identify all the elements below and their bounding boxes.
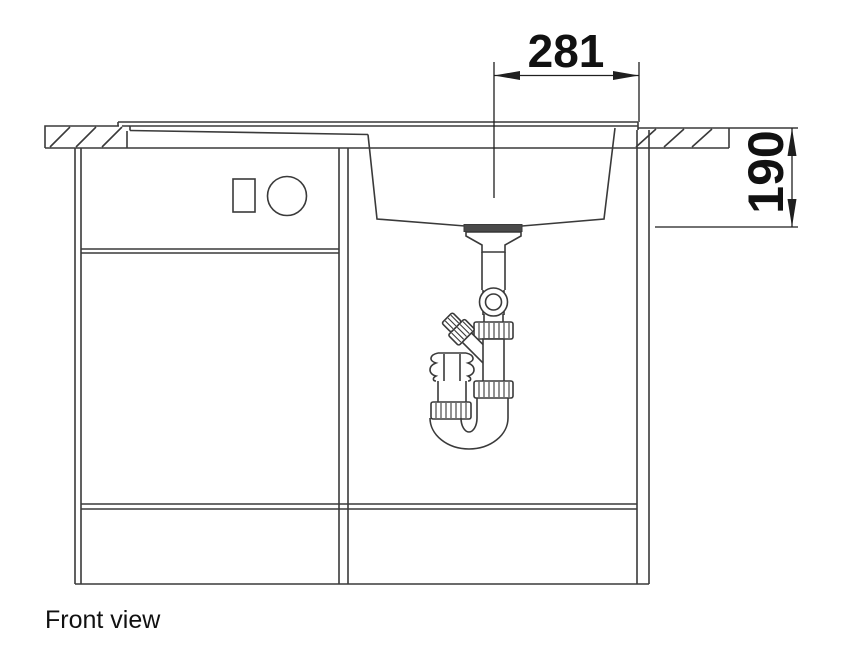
worktop (45, 126, 798, 148)
worktop-left-hatching (50, 127, 122, 147)
standpipe-tube (438, 381, 466, 402)
tailpipe-lower (483, 339, 504, 382)
trap-nut-upper-knurling (479, 323, 509, 338)
u-bend-inner-arc (461, 418, 477, 432)
dimension-depth-label: 190 (738, 130, 794, 213)
trap-standpipe (430, 353, 474, 419)
dimension-width-arrow-right (613, 71, 639, 80)
cabinet-middle-divider (339, 148, 348, 584)
sink-unit (118, 122, 638, 232)
front-view-caption: Front view (45, 606, 161, 634)
sink-bowl-right-wall (522, 128, 615, 226)
cabinet-right-wall (637, 130, 649, 584)
dimension-width-label: 281 (528, 25, 605, 77)
dimension-width-arrow-left (494, 71, 520, 80)
ball-joint-inner (486, 294, 502, 310)
cabinet-left-wall (75, 148, 81, 584)
drain-strainer (464, 225, 522, 232)
standpipe-cap-outline (430, 353, 474, 381)
u-bend-right-arm (477, 398, 508, 418)
appliance-front (81, 177, 339, 254)
standpipe-cap-inner (444, 354, 460, 381)
tailpipe-upper (482, 252, 505, 290)
sink-rim (118, 122, 638, 135)
cabinet (75, 130, 649, 584)
appliance-panel-divider (81, 249, 339, 253)
sink-front-view-drawing: 281 190 Front view (0, 0, 853, 656)
dimension-width-extension-lines (494, 62, 639, 198)
u-bend-outer-arc (430, 418, 508, 449)
dimension-width: 281 (494, 25, 639, 198)
technical-drawing-canvas: 281 190 Front view (0, 0, 853, 656)
trap-nut-lower-knurling (436, 403, 466, 418)
sink-drainboard (130, 131, 368, 135)
drain-trap (430, 232, 521, 449)
appliance-control-square (233, 179, 255, 212)
sink-bowl (368, 128, 615, 226)
worktop-left-section (45, 126, 127, 148)
trap-nut-middle-knurling (479, 382, 509, 397)
worktop-right-hatching (636, 129, 712, 147)
plinth-divider (81, 504, 637, 509)
dimension-depth: 190 (655, 128, 798, 227)
drain-reducer (466, 232, 521, 252)
appliance-control-knob (268, 177, 307, 216)
